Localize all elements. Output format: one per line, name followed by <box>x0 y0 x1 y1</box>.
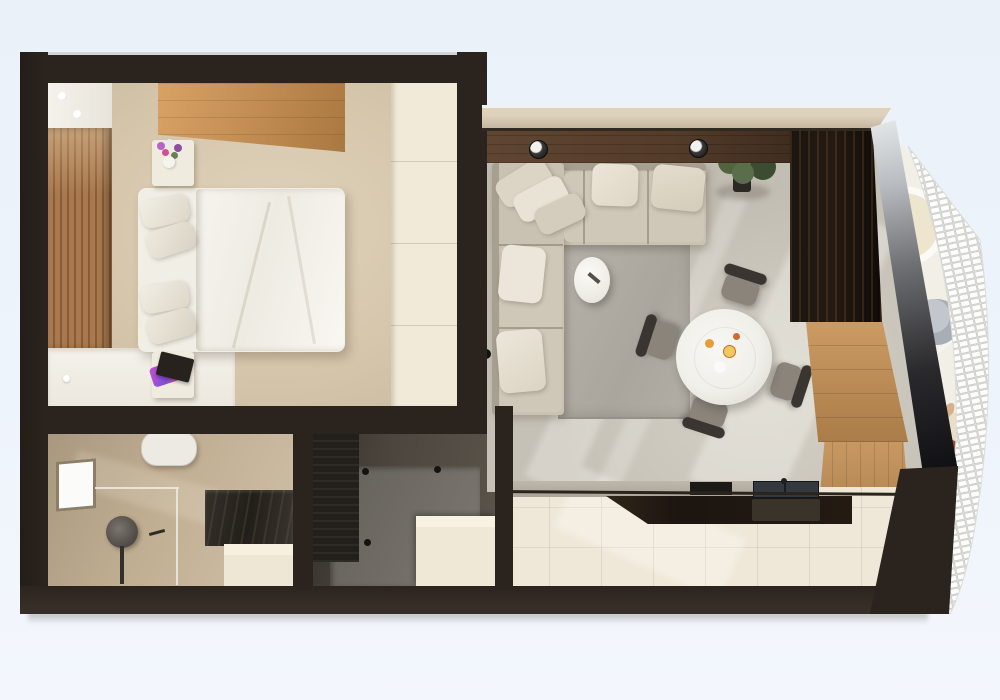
wall-living-top-shadowline <box>482 128 878 131</box>
vanity-desk <box>48 348 235 406</box>
flower <box>166 139 173 146</box>
oven <box>752 499 820 521</box>
shower-column <box>120 546 124 584</box>
track-spotlight <box>529 140 548 159</box>
bed-duvet <box>196 189 345 351</box>
track-spotlight <box>689 139 708 158</box>
media-unit <box>790 130 882 322</box>
sink-faucet <box>781 478 787 484</box>
dining-plate <box>705 339 714 348</box>
dining-plate <box>723 345 736 358</box>
plant-leaves <box>732 162 754 184</box>
flower-bouquet <box>153 138 191 174</box>
wall-hook <box>364 539 371 546</box>
vase <box>163 156 175 168</box>
floor-plan-scene <box>0 0 1000 700</box>
dining-table-ring <box>694 327 756 389</box>
toilet <box>141 431 197 466</box>
wall-left <box>20 52 48 614</box>
wall-bottom <box>20 586 910 614</box>
wall-bathroom-utility <box>293 406 313 590</box>
wall-bedroom-bathroom <box>44 406 487 434</box>
desk-knob <box>63 375 70 382</box>
bathroom-cabinet <box>224 544 293 586</box>
bathroom-window <box>56 458 96 511</box>
throw-pillow <box>591 163 638 207</box>
cove-spotlight <box>73 110 82 119</box>
throw-pillow <box>495 328 546 394</box>
headboard-slat-wall <box>48 128 112 350</box>
ceiling-cove <box>48 80 112 130</box>
utility-cabinet-cream <box>416 516 495 586</box>
wall-hook <box>434 466 441 473</box>
building-shadow <box>28 612 928 624</box>
shower-glass-vertical <box>176 487 178 585</box>
shower-head <box>106 516 138 548</box>
throw-pillow <box>497 244 547 304</box>
wall-hook <box>362 468 369 475</box>
shower-glass-horizontal <box>95 487 179 489</box>
utility-cabinet-dark <box>313 434 359 562</box>
coffee-table <box>574 257 610 303</box>
bathroom-vanity <box>205 490 293 546</box>
throw-pillow <box>650 163 706 212</box>
wall-living-top <box>482 105 894 130</box>
dining-plate <box>733 333 740 340</box>
bedroom-tile-border <box>391 80 457 408</box>
cove-spotlight <box>58 92 67 101</box>
kitchen-sink <box>753 481 819 498</box>
wall-utility-kitchen <box>495 406 513 590</box>
flower <box>174 144 182 152</box>
wall-top-bedroom <box>20 52 487 83</box>
sofa-seam <box>647 170 649 244</box>
flower <box>162 149 169 156</box>
dining-plate <box>714 361 726 373</box>
